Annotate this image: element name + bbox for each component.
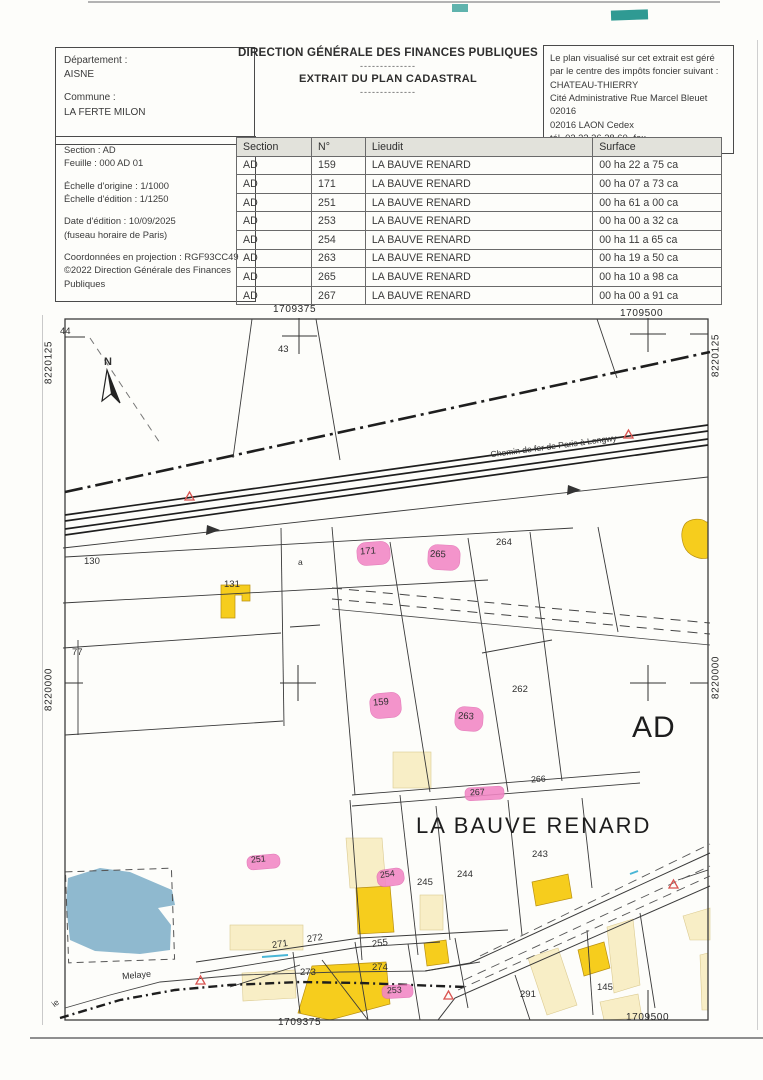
notice-line: Cité Administrative Rue Marcel Bleuet bbox=[550, 91, 727, 104]
scan-artifact bbox=[452, 4, 468, 12]
coordinate-label-y: 8220125 bbox=[44, 328, 55, 398]
copyright: ©2022 Direction Générale des Finances bbox=[64, 263, 247, 276]
echelle-edition: Échelle d'édition : 1/1250 bbox=[64, 192, 247, 205]
map-linework bbox=[40, 308, 723, 1030]
projection: Coordonnées en projection : RGF93CC49 bbox=[64, 250, 247, 263]
parcel-label: 272 bbox=[306, 932, 323, 945]
parcel-label: 77 bbox=[72, 647, 83, 658]
table-cell: LA BAUVE RENARD bbox=[365, 193, 592, 212]
table-cell: AD bbox=[237, 193, 312, 212]
table-cell: AD bbox=[237, 286, 312, 305]
north-label: N bbox=[104, 356, 112, 368]
table-cell: 00 ha 22 a 75 ca bbox=[593, 156, 722, 175]
scan-artifact bbox=[757, 40, 758, 1030]
commune-label: Commune : bbox=[64, 91, 246, 105]
pond bbox=[65, 868, 175, 963]
departement-label: Département : bbox=[64, 54, 246, 68]
table-row: AD159LA BAUVE RENARD00 ha 22 a 75 ca bbox=[237, 156, 722, 175]
parcel-label: 262 bbox=[512, 684, 528, 695]
coordinate-label-y: 8220125 bbox=[711, 321, 722, 391]
table-cell: 265 bbox=[312, 268, 366, 287]
parcel-label: a bbox=[298, 557, 303, 567]
departement-commune-box: Département : AISNE Commune : LA FERTE M… bbox=[55, 47, 255, 145]
table-cell: 00 ha 61 a 00 ca bbox=[593, 193, 722, 212]
parcel-label: 43 bbox=[278, 344, 289, 355]
table-cell: 254 bbox=[312, 230, 366, 249]
table-cell: AD bbox=[237, 249, 312, 268]
notice-line: CHATEAU-THIERRY bbox=[550, 78, 727, 91]
parcel-label: 44 bbox=[60, 326, 71, 337]
table-cell: AD bbox=[237, 156, 312, 175]
notice-line: 02016 bbox=[550, 104, 727, 117]
parcel-label: 130 bbox=[84, 556, 100, 567]
table-cell: 00 ha 07 a 73 ca bbox=[593, 175, 722, 194]
table-cell: AD bbox=[237, 212, 312, 231]
spacer bbox=[64, 205, 247, 214]
parcel-label: 159 bbox=[373, 696, 390, 708]
table-cell: LA BAUVE RENARD bbox=[365, 286, 592, 305]
scan-artifact bbox=[611, 9, 648, 20]
table-cell: AD bbox=[237, 175, 312, 194]
section-label: AD bbox=[632, 711, 676, 745]
parcel-label: 274 bbox=[372, 962, 388, 973]
section-info: Section : AD bbox=[64, 143, 247, 156]
parcel-label: 131 bbox=[224, 579, 240, 590]
table-header-cell: N° bbox=[312, 138, 366, 157]
lieu-dit-label: LA BAUVE RENARD bbox=[416, 813, 651, 839]
parcel-label: 244 bbox=[457, 869, 473, 880]
coordinate-label-y: 8220000 bbox=[44, 655, 55, 725]
fuseau: (fuseau horaire de Paris) bbox=[64, 228, 247, 241]
date-edition: Date d'édition : 10/09/2025 bbox=[64, 214, 247, 227]
table-cell: 263 bbox=[312, 249, 366, 268]
table-row: AD263LA BAUVE RENARD00 ha 19 a 50 ca bbox=[237, 249, 722, 268]
parcel-label: 243 bbox=[532, 849, 548, 860]
table-cell: 159 bbox=[312, 156, 366, 175]
parcel-label: 267 bbox=[470, 787, 485, 798]
table-cell: 00 ha 00 a 91 ca bbox=[593, 286, 722, 305]
sheet-info-box: Section : AD Feuille : 000 AD 01 Échelle… bbox=[55, 136, 256, 302]
table-cell: 251 bbox=[312, 193, 366, 212]
document-title-block: DIRECTION GÉNÉRALE DES FINANCES PUBLIQUE… bbox=[232, 46, 544, 99]
table-header-row: Section N° Lieudit Surface bbox=[237, 138, 722, 157]
table-cell: LA BAUVE RENARD bbox=[365, 230, 592, 249]
document-subtitle: EXTRAIT DU PLAN CADASTRAL bbox=[232, 73, 544, 85]
footpath-dashed bbox=[332, 588, 710, 645]
table-row: AD254LA BAUVE RENARD00 ha 11 a 65 ca bbox=[237, 230, 722, 249]
table-cell: 171 bbox=[312, 175, 366, 194]
table-cell: LA BAUVE RENARD bbox=[365, 249, 592, 268]
parcel-label: 264 bbox=[496, 537, 512, 548]
copyright: Publiques bbox=[64, 277, 247, 290]
table-row: AD251LA BAUVE RENARD00 ha 61 a 00 ca bbox=[237, 193, 722, 212]
scan-artifact bbox=[88, 1, 720, 3]
parcel-label: 291 bbox=[520, 989, 536, 1000]
table-cell: 00 ha 11 a 65 ca bbox=[593, 230, 722, 249]
parcel-label: 171 bbox=[360, 545, 377, 557]
echelle-origine: Échelle d'origine : 1/1000 bbox=[64, 179, 247, 192]
table-cell: 00 ha 19 a 50 ca bbox=[593, 249, 722, 268]
table-cell: LA BAUVE RENARD bbox=[365, 175, 592, 194]
table-cell: 00 ha 00 a 32 ca bbox=[593, 212, 722, 231]
parcel-label: 263 bbox=[458, 710, 475, 722]
feuille-info: Feuille : 000 AD 01 bbox=[64, 156, 247, 169]
table-header-cell: Section bbox=[237, 138, 312, 157]
parcel-label: 145 bbox=[597, 982, 613, 993]
boundary-line bbox=[65, 352, 710, 492]
coordinate-label-x: 1709500 bbox=[626, 1012, 669, 1023]
cadastral-map: 1709375 1709500 1709375 1709500 8220125 … bbox=[40, 308, 723, 1030]
spacer bbox=[64, 82, 246, 91]
parcel-label: 266 bbox=[531, 773, 546, 784]
table-cell: AD bbox=[237, 268, 312, 287]
parcel-label: 254 bbox=[379, 868, 395, 880]
notice-line: par le centre des impôts foncier suivant… bbox=[550, 64, 727, 77]
scan-artifact bbox=[30, 1037, 763, 1039]
table-row: AD253LA BAUVE RENARD00 ha 00 a 32 ca bbox=[237, 212, 722, 231]
table-cell: LA BAUVE RENARD bbox=[365, 268, 592, 287]
cadastral-extract-page: Département : AISNE Commune : LA FERTE M… bbox=[0, 0, 763, 1080]
table-row: AD171LA BAUVE RENARD00 ha 07 a 73 ca bbox=[237, 175, 722, 194]
document-title: DIRECTION GÉNÉRALE DES FINANCES PUBLIQUE… bbox=[232, 46, 544, 59]
north-arrow-icon bbox=[90, 338, 162, 446]
parcel-table: Section N° Lieudit Surface AD159LA BAUVE… bbox=[236, 137, 722, 305]
coordinate-label-x: 1709500 bbox=[620, 308, 663, 319]
parcel-label: 253 bbox=[387, 985, 402, 996]
title-separator: -------------- bbox=[232, 87, 544, 97]
notice-line: 02016 LAON Cedex bbox=[550, 118, 727, 131]
table-cell: AD bbox=[237, 230, 312, 249]
parcel-label: 255 bbox=[371, 937, 388, 950]
spacer bbox=[64, 170, 247, 179]
table-header-cell: Surface bbox=[593, 138, 722, 157]
table-cell: 267 bbox=[312, 286, 366, 305]
table-cell: LA BAUVE RENARD bbox=[365, 212, 592, 231]
coordinate-label-x: 1709375 bbox=[273, 304, 316, 315]
commune-value: LA FERTE MILON bbox=[64, 106, 246, 120]
parcel-label: 273 bbox=[300, 967, 316, 978]
title-separator: -------------- bbox=[232, 61, 544, 71]
notice-line: Le plan visualisé sur cet extrait est gé… bbox=[550, 51, 727, 64]
table-cell: 253 bbox=[312, 212, 366, 231]
departement-value: AISNE bbox=[64, 68, 246, 82]
table-cell: LA BAUVE RENARD bbox=[365, 156, 592, 175]
parcel-label: 251 bbox=[251, 853, 267, 864]
parcel-label: 271 bbox=[271, 938, 288, 951]
table-header-cell: Lieudit bbox=[365, 138, 592, 157]
coordinate-label-x: 1709375 bbox=[278, 1017, 321, 1028]
spacer bbox=[64, 241, 247, 250]
table-row: AD267LA BAUVE RENARD00 ha 00 a 91 ca bbox=[237, 286, 722, 305]
table-row: AD265LA BAUVE RENARD00 ha 10 a 98 ca bbox=[237, 268, 722, 287]
line-arrows bbox=[206, 485, 581, 535]
coordinate-label-y: 8220000 bbox=[711, 643, 722, 713]
table-cell: 00 ha 10 a 98 ca bbox=[593, 268, 722, 287]
parcel-label: 245 bbox=[417, 877, 433, 888]
parcel-label: 265 bbox=[430, 549, 446, 561]
